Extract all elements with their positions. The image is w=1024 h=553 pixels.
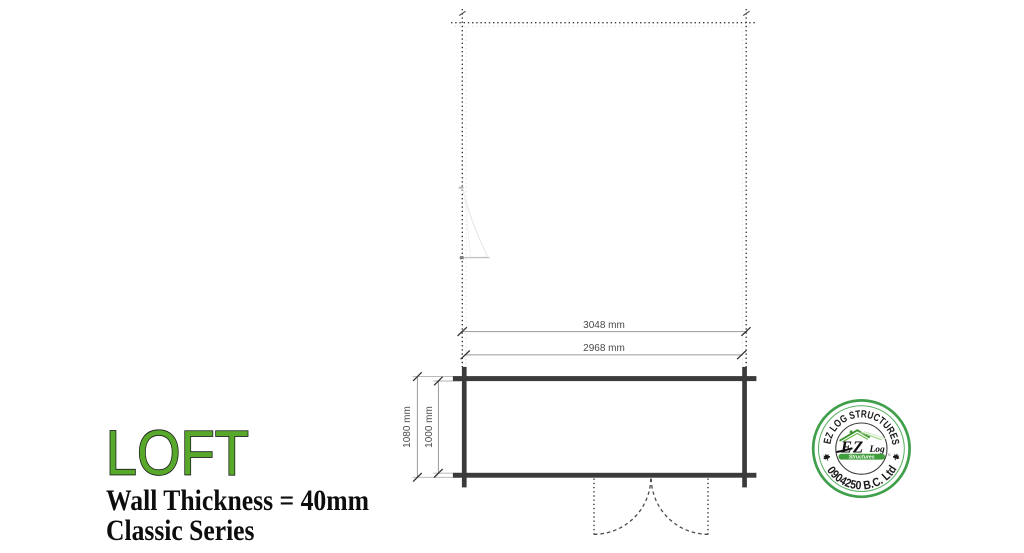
svg-text:1000 mm: 1000 mm [424,406,435,448]
svg-text:Classic Series: Classic Series [106,515,255,547]
svg-text:3048 mm: 3048 mm [583,320,625,331]
svg-text:Structures: Structures [849,455,875,461]
svg-text:Log: Log [869,445,886,455]
svg-text:Wall Thickness = 40mm: Wall Thickness = 40mm [106,485,369,517]
svg-text:TM: TM [886,453,891,457]
svg-text:1080 mm: 1080 mm [402,406,413,448]
svg-text:LOFT: LOFT [106,417,249,488]
svg-text:2968 mm: 2968 mm [583,343,625,354]
